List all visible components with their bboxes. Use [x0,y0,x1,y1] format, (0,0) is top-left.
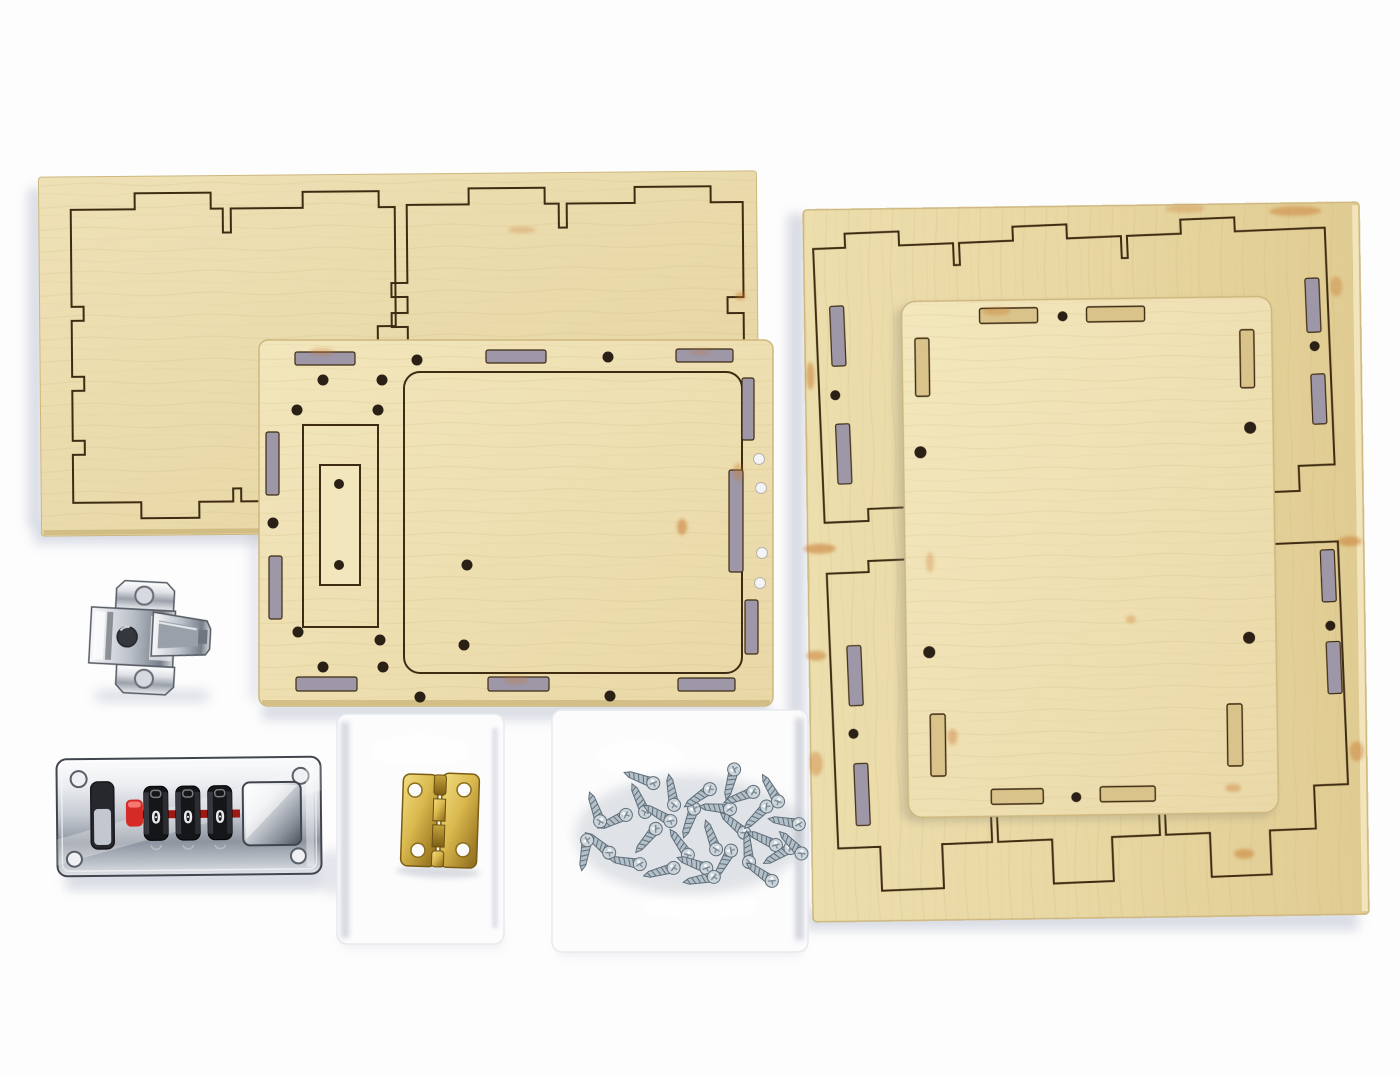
hinge-knuckle [433,799,446,821]
panel-middle-edge-face [262,700,770,705]
bracket-screw-hole-top [135,586,154,605]
screws-bag [552,710,811,952]
hinge-knuckle [434,775,447,795]
dial-digit-1: 0 [151,808,161,828]
photo-canvas: 0 0 0 [0,0,1400,1076]
bracket-arm-slot [198,630,208,644]
combination-lock: 0 0 0 [56,757,321,877]
panel-overlay [894,296,1278,822]
bag-sheen [640,891,760,919]
dial-digit-3: 0 [215,808,225,828]
plywood-sheet-right [799,202,1369,922]
lock-latch-slot-metal [94,809,111,845]
bag-sheen [598,742,682,774]
kit-photo: 0 0 0 [0,0,1400,1076]
bag-fold-shadow-right [492,728,498,928]
bag-sheen [370,736,470,764]
panel-middle [259,340,773,706]
bracket-cam-hole [117,626,138,647]
hinge-knuckle [431,851,444,867]
bag-fold-shadow-left [341,722,349,938]
hinge-knuckle [432,825,445,847]
brass-hinge [396,772,484,880]
lock-reset-slider-glint [128,802,141,808]
dial-digit-2: 0 [183,808,193,828]
lock-plate-edge-glint [305,765,314,867]
bracket-screw-hole-bottom [135,669,154,688]
panel-overlay-grain [901,296,1278,817]
